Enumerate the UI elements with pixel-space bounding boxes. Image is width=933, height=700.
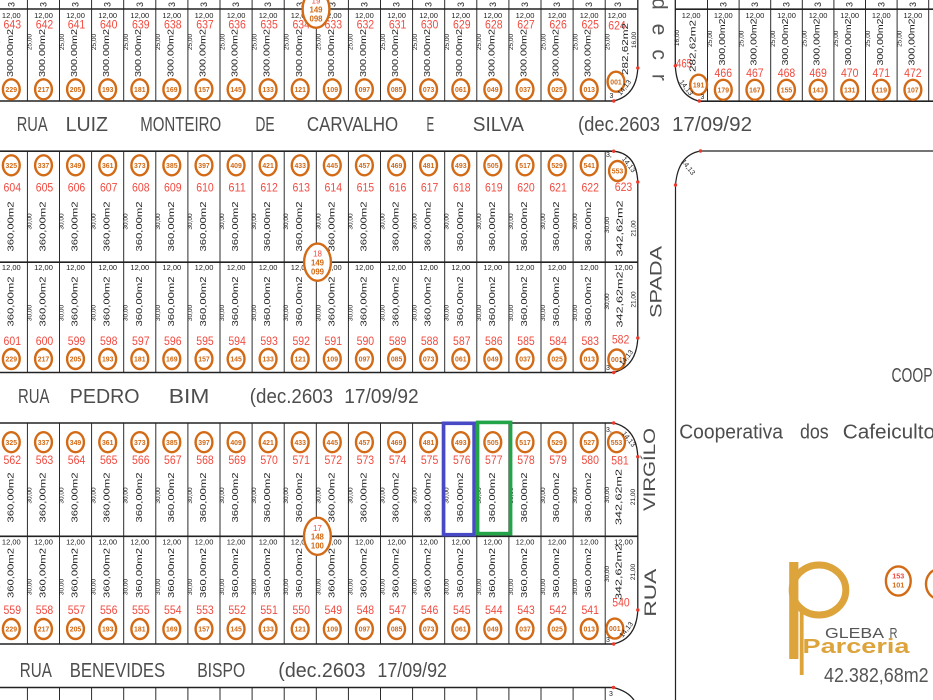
- svg-text:553: 553: [612, 169, 624, 176]
- svg-text:25,00: 25,00: [738, 30, 745, 47]
- svg-text:360,00m2: 360,00m2: [294, 276, 304, 326]
- svg-text:553: 553: [611, 440, 623, 447]
- svg-text:360,00m2: 360,00m2: [326, 472, 336, 522]
- svg-text:205: 205: [70, 357, 82, 364]
- svg-text:30,00: 30,00: [380, 487, 387, 504]
- svg-text:3: 3: [584, 2, 594, 7]
- svg-text:571: 571: [292, 453, 310, 467]
- svg-text:169: 169: [166, 627, 178, 634]
- svg-text:30,00: 30,00: [26, 304, 33, 321]
- svg-text:3: 3: [424, 2, 434, 7]
- svg-text:433: 433: [294, 440, 306, 447]
- svg-text:554: 554: [164, 603, 182, 617]
- svg-text:300.00m2: 300.00m2: [37, 29, 47, 77]
- svg-text:587: 587: [453, 334, 471, 348]
- svg-text:360,00m2: 360,00m2: [519, 201, 529, 251]
- svg-text:12,00: 12,00: [419, 263, 438, 272]
- svg-text:360,00m2: 360,00m2: [102, 201, 112, 251]
- svg-text:30,00: 30,00: [283, 304, 290, 321]
- svg-text:300.00m2: 300.00m2: [198, 29, 208, 77]
- svg-text:457: 457: [359, 163, 371, 170]
- svg-text:(dec.2603: (dec.2603: [578, 114, 660, 136]
- svg-text:18: 18: [313, 250, 322, 259]
- svg-text:3: 3: [103, 2, 113, 7]
- svg-text:300.00m2: 300.00m2: [486, 29, 496, 77]
- svg-text:325: 325: [6, 440, 18, 447]
- svg-text:30,00: 30,00: [251, 578, 258, 595]
- svg-text:17/09/92: 17/09/92: [672, 114, 752, 136]
- svg-text:30,00: 30,00: [412, 578, 419, 595]
- svg-text:30,00: 30,00: [26, 213, 33, 230]
- svg-text:12,00: 12,00: [387, 537, 406, 546]
- svg-text:157: 157: [198, 357, 210, 364]
- svg-text:360,00m2: 360,00m2: [423, 201, 433, 251]
- svg-text:360,00m2: 360,00m2: [326, 201, 336, 251]
- svg-text:360,00m2: 360,00m2: [230, 548, 240, 598]
- svg-text:472: 472: [904, 66, 922, 80]
- svg-text:30,00: 30,00: [540, 213, 547, 230]
- svg-text:579: 579: [549, 453, 567, 467]
- svg-text:547: 547: [389, 603, 407, 617]
- svg-text:181: 181: [134, 357, 146, 364]
- svg-text:545: 545: [453, 603, 471, 617]
- svg-text:25,00: 25,00: [540, 33, 547, 50]
- svg-text:25,00: 25,00: [91, 33, 98, 50]
- svg-text:552: 552: [228, 603, 246, 617]
- svg-text:229: 229: [6, 627, 18, 634]
- svg-text:217: 217: [38, 87, 50, 94]
- svg-text:576: 576: [453, 453, 471, 467]
- svg-text:360,00m2: 360,00m2: [487, 548, 497, 598]
- svg-text:3: 3: [609, 691, 613, 698]
- svg-text:12,00: 12,00: [162, 263, 181, 272]
- svg-text:623: 623: [615, 180, 633, 194]
- svg-text:3: 3: [6, 2, 16, 7]
- svg-text:591: 591: [325, 334, 343, 348]
- svg-text:300.00m2: 300.00m2: [519, 29, 529, 77]
- svg-text:30,00: 30,00: [380, 304, 387, 321]
- svg-text:300,00m2: 300,00m2: [843, 18, 853, 65]
- svg-text:421: 421: [262, 440, 274, 447]
- svg-text:155: 155: [781, 87, 793, 94]
- svg-text:25,00: 25,00: [444, 33, 451, 50]
- svg-text:282,62m2: 282,62m2: [688, 20, 698, 72]
- svg-text:3: 3: [263, 2, 273, 7]
- svg-text:30,00: 30,00: [123, 487, 130, 504]
- svg-text:dos: dos: [800, 422, 829, 444]
- svg-text:282,62m2: 282,62m2: [620, 23, 630, 75]
- svg-text:30,00: 30,00: [380, 213, 387, 230]
- svg-text:577: 577: [485, 453, 503, 467]
- svg-text:073: 073: [423, 627, 435, 634]
- svg-text:12,00: 12,00: [451, 263, 470, 272]
- svg-text:25,00: 25,00: [123, 33, 130, 50]
- svg-text:145: 145: [230, 87, 242, 94]
- svg-text:360,00m2: 360,00m2: [423, 276, 433, 326]
- svg-text:3: 3: [606, 637, 610, 644]
- svg-text:360,00m2: 360,00m2: [326, 276, 336, 326]
- svg-text:373: 373: [134, 440, 146, 447]
- svg-text:25,00: 25,00: [187, 33, 194, 50]
- svg-text:3: 3: [39, 2, 49, 7]
- svg-text:360,00m2: 360,00m2: [519, 276, 529, 326]
- svg-text:300.00m2: 300.00m2: [165, 29, 175, 77]
- svg-text:157: 157: [198, 87, 210, 94]
- svg-text:575: 575: [421, 453, 439, 467]
- svg-text:3: 3: [520, 2, 530, 7]
- svg-text:153: 153: [892, 572, 904, 581]
- svg-text:360,00m2: 360,00m2: [102, 276, 112, 326]
- svg-text:145: 145: [230, 357, 242, 364]
- svg-text:Parceria: Parceria: [803, 636, 911, 658]
- svg-text:558: 558: [36, 603, 54, 617]
- svg-text:342,62m2: 342,62m2: [614, 544, 624, 600]
- svg-text:25,00: 25,00: [412, 33, 419, 50]
- svg-text:550: 550: [292, 603, 310, 617]
- svg-text:21,00: 21,00: [631, 291, 638, 308]
- svg-text:549: 549: [325, 603, 343, 617]
- svg-text:342,62m2: 342,62m2: [614, 469, 624, 525]
- svg-text:30,00: 30,00: [604, 216, 611, 233]
- svg-text:30,00: 30,00: [155, 304, 162, 321]
- svg-text:614: 614: [325, 181, 343, 195]
- svg-text:061: 061: [455, 357, 467, 364]
- svg-text:30,00: 30,00: [315, 487, 322, 504]
- svg-text:E: E: [427, 114, 435, 136]
- svg-text:30,00: 30,00: [59, 213, 66, 230]
- svg-text:145: 145: [230, 627, 242, 634]
- svg-text:073: 073: [423, 87, 435, 94]
- svg-text:360,00m2: 360,00m2: [551, 201, 561, 251]
- svg-text:300,00m2: 300,00m2: [812, 18, 822, 65]
- svg-text:12,00: 12,00: [2, 263, 21, 272]
- svg-text:572: 572: [325, 453, 343, 467]
- svg-text:30,00: 30,00: [540, 304, 547, 321]
- svg-text:578: 578: [517, 453, 535, 467]
- svg-text:397: 397: [198, 440, 210, 447]
- svg-text:131: 131: [844, 87, 856, 94]
- svg-text:3: 3: [718, 2, 728, 7]
- svg-text:360,00m2: 360,00m2: [487, 472, 497, 522]
- svg-text:30,00: 30,00: [508, 304, 515, 321]
- svg-text:RUA: RUA: [17, 114, 48, 136]
- svg-text:563: 563: [36, 453, 54, 467]
- svg-text:360,00m2: 360,00m2: [5, 472, 15, 522]
- svg-text:30,00: 30,00: [604, 565, 611, 582]
- svg-text:609: 609: [164, 181, 182, 195]
- svg-text:12,00: 12,00: [682, 11, 701, 20]
- svg-text:(dec.2603: (dec.2603: [250, 386, 333, 408]
- svg-text:085: 085: [391, 627, 403, 634]
- svg-text:30,00: 30,00: [347, 578, 354, 595]
- svg-text:30,00: 30,00: [91, 304, 98, 321]
- svg-text:540: 540: [612, 596, 630, 610]
- svg-text:30,00: 30,00: [0, 213, 1, 230]
- svg-text:3: 3: [199, 2, 209, 7]
- svg-text:30,00: 30,00: [572, 578, 579, 595]
- svg-text:385: 385: [166, 163, 178, 170]
- svg-text:12,00: 12,00: [66, 263, 85, 272]
- svg-text:361: 361: [102, 440, 114, 447]
- svg-text:360,00m2: 360,00m2: [583, 472, 593, 522]
- svg-text:360,00m2: 360,00m2: [326, 548, 336, 598]
- svg-text:360,00m2: 360,00m2: [391, 548, 401, 598]
- svg-text:542: 542: [549, 603, 567, 617]
- svg-text:583: 583: [581, 334, 599, 348]
- svg-text:421: 421: [262, 163, 274, 170]
- svg-text:505: 505: [487, 440, 499, 447]
- svg-text:360,00m2: 360,00m2: [551, 548, 561, 598]
- svg-text:360,00m2: 360,00m2: [391, 276, 401, 326]
- svg-text:098: 098: [310, 14, 324, 23]
- svg-text:21,00: 21,00: [630, 488, 637, 505]
- svg-text:543: 543: [517, 603, 535, 617]
- svg-text:037: 037: [519, 627, 531, 634]
- svg-text:607: 607: [100, 181, 118, 195]
- svg-text:013: 013: [583, 87, 595, 94]
- svg-text:25,00: 25,00: [0, 33, 2, 50]
- svg-text:360,00m2: 360,00m2: [70, 276, 80, 326]
- svg-text:593: 593: [260, 334, 278, 348]
- svg-text:373: 373: [134, 163, 146, 170]
- svg-text:133: 133: [262, 87, 274, 94]
- svg-text:360,00m2: 360,00m2: [134, 472, 144, 522]
- svg-text:612: 612: [260, 181, 278, 195]
- svg-text:decr: decr: [648, 0, 671, 95]
- svg-text:049: 049: [487, 357, 499, 364]
- svg-text:3: 3: [813, 2, 823, 7]
- svg-text:3: 3: [231, 2, 241, 7]
- svg-text:30,00: 30,00: [123, 578, 130, 595]
- svg-text:30,00: 30,00: [444, 213, 451, 230]
- svg-text:360,00m2: 360,00m2: [583, 276, 593, 326]
- svg-text:517: 517: [519, 440, 531, 447]
- svg-text:25,00: 25,00: [707, 30, 714, 47]
- svg-text:30,00: 30,00: [0, 487, 1, 504]
- svg-text:601: 601: [4, 334, 22, 348]
- svg-text:21,00: 21,00: [631, 220, 638, 237]
- svg-text:25,00: 25,00: [896, 30, 903, 47]
- svg-text:595: 595: [196, 334, 214, 348]
- svg-text:300.00m2: 300.00m2: [133, 29, 143, 77]
- svg-text:30,00: 30,00: [59, 304, 66, 321]
- svg-text:205: 205: [70, 627, 82, 634]
- svg-text:30,00: 30,00: [91, 578, 98, 595]
- svg-text:445: 445: [327, 163, 339, 170]
- svg-text:588: 588: [421, 334, 439, 348]
- svg-text:LUIZ: LUIZ: [66, 114, 108, 136]
- svg-text:001: 001: [609, 626, 621, 633]
- svg-text:193: 193: [102, 357, 114, 364]
- svg-text:30,00: 30,00: [283, 578, 290, 595]
- svg-text:30,00: 30,00: [251, 213, 258, 230]
- svg-text:548: 548: [357, 603, 375, 617]
- svg-text:025: 025: [551, 627, 563, 634]
- svg-text:121: 121: [294, 87, 306, 94]
- svg-text:16,00: 16,00: [631, 31, 638, 48]
- svg-text:469: 469: [391, 440, 403, 447]
- svg-text:30,00: 30,00: [0, 578, 1, 595]
- svg-text:617: 617: [421, 181, 439, 195]
- svg-text:30,00: 30,00: [508, 578, 515, 595]
- svg-text:RUA: RUA: [20, 660, 53, 682]
- svg-text:30,00: 30,00: [26, 578, 33, 595]
- svg-text:30,00: 30,00: [315, 213, 322, 230]
- svg-text:3: 3: [908, 2, 918, 7]
- svg-text:3: 3: [135, 2, 145, 7]
- svg-text:300.00m2: 300.00m2: [262, 29, 272, 77]
- svg-text:148: 148: [311, 533, 325, 542]
- svg-text:581: 581: [611, 454, 629, 468]
- svg-text:3: 3: [456, 2, 466, 7]
- svg-text:567: 567: [164, 453, 182, 467]
- svg-text:30,00: 30,00: [540, 487, 547, 504]
- svg-text:100: 100: [311, 542, 325, 551]
- svg-text:469: 469: [391, 163, 403, 170]
- svg-text:360,00m2: 360,00m2: [134, 201, 144, 251]
- svg-text:360,00m2: 360,00m2: [487, 201, 497, 251]
- svg-text:582: 582: [612, 333, 630, 347]
- svg-text:360,00m2: 360,00m2: [551, 472, 561, 522]
- svg-text:037: 037: [519, 357, 531, 364]
- svg-text:3: 3: [701, 94, 705, 101]
- svg-text:619: 619: [485, 181, 503, 195]
- svg-text:30,00: 30,00: [187, 304, 194, 321]
- svg-text:589: 589: [389, 334, 407, 348]
- svg-text:360,00m2: 360,00m2: [358, 548, 368, 598]
- svg-text:205: 205: [70, 87, 82, 94]
- svg-text:469: 469: [809, 66, 827, 80]
- svg-text:30,00: 30,00: [604, 293, 611, 310]
- svg-text:12,00: 12,00: [483, 537, 502, 546]
- svg-text:12,00: 12,00: [355, 263, 374, 272]
- svg-text:360,00m2: 360,00m2: [230, 276, 240, 326]
- svg-text:360,00m2: 360,00m2: [102, 472, 112, 522]
- svg-text:179: 179: [718, 87, 730, 94]
- svg-text:25,00: 25,00: [251, 33, 258, 50]
- svg-text:574: 574: [389, 453, 407, 467]
- svg-text:325: 325: [6, 163, 18, 170]
- svg-text:337: 337: [38, 163, 50, 170]
- svg-text:Cooperativa: Cooperativa: [679, 422, 784, 444]
- svg-text:409: 409: [230, 163, 242, 170]
- svg-text:101: 101: [892, 581, 904, 590]
- svg-text:360,00m2: 360,00m2: [70, 472, 80, 522]
- svg-text:BENEVIDES: BENEVIDES: [70, 660, 165, 682]
- svg-text:360,00m2: 360,00m2: [262, 276, 272, 326]
- svg-text:12,00: 12,00: [580, 537, 599, 546]
- svg-text:25,00: 25,00: [476, 33, 483, 50]
- svg-text:25,00: 25,00: [155, 33, 162, 50]
- svg-text:12,00: 12,00: [66, 537, 85, 546]
- svg-text:12,00: 12,00: [98, 537, 117, 546]
- svg-text:25,00: 25,00: [605, 33, 612, 50]
- svg-text:085: 085: [391, 357, 403, 364]
- svg-text:562: 562: [4, 453, 22, 467]
- svg-text:566: 566: [132, 453, 150, 467]
- svg-text:25,00: 25,00: [348, 33, 355, 50]
- svg-text:471: 471: [873, 66, 891, 80]
- svg-text:30,00: 30,00: [444, 578, 451, 595]
- svg-text:360,00m2: 360,00m2: [294, 201, 304, 251]
- svg-text:605: 605: [36, 181, 54, 195]
- svg-text:12,00: 12,00: [130, 537, 149, 546]
- svg-text:608: 608: [132, 181, 150, 195]
- svg-text:360,00m2: 360,00m2: [455, 201, 465, 251]
- svg-text:30,00: 30,00: [251, 487, 258, 504]
- svg-text:360,00m2: 360,00m2: [70, 548, 80, 598]
- svg-text:397: 397: [198, 163, 210, 170]
- svg-text:30,00: 30,00: [412, 213, 419, 230]
- svg-text:30,00: 30,00: [347, 304, 354, 321]
- svg-text:149: 149: [310, 5, 324, 14]
- svg-text:17: 17: [313, 524, 322, 533]
- svg-text:300,00m2: 300,00m2: [906, 18, 916, 65]
- svg-text:568: 568: [196, 453, 214, 467]
- svg-text:599: 599: [68, 334, 86, 348]
- svg-text:433: 433: [294, 163, 306, 170]
- svg-text:360,00m2: 360,00m2: [198, 548, 208, 598]
- svg-text:360,00m2: 360,00m2: [358, 201, 368, 251]
- svg-text:30,00: 30,00: [540, 578, 547, 595]
- svg-text:3: 3: [392, 2, 402, 7]
- svg-text:360,00m2: 360,00m2: [134, 548, 144, 598]
- svg-text:360,00m2: 360,00m2: [166, 276, 176, 326]
- svg-text:360,00m2: 360,00m2: [583, 201, 593, 251]
- svg-text:30,00: 30,00: [155, 578, 162, 595]
- svg-text:564: 564: [68, 453, 86, 467]
- svg-text:SPADA: SPADA: [647, 245, 666, 318]
- svg-text:12,00: 12,00: [419, 537, 438, 546]
- svg-text:360,00m2: 360,00m2: [358, 276, 368, 326]
- svg-text:470: 470: [841, 66, 859, 80]
- svg-text:3: 3: [359, 2, 369, 7]
- svg-text:30,00: 30,00: [347, 213, 354, 230]
- svg-text:622: 622: [581, 181, 599, 195]
- svg-text:360,00m2: 360,00m2: [38, 548, 48, 598]
- svg-text:109: 109: [327, 87, 339, 94]
- svg-text:30,00: 30,00: [476, 213, 483, 230]
- svg-text:300.00m2: 300.00m2: [101, 29, 111, 77]
- svg-text:556: 556: [100, 603, 118, 617]
- svg-text:073: 073: [423, 357, 435, 364]
- svg-text:481: 481: [423, 163, 435, 170]
- svg-text:25,00: 25,00: [802, 30, 809, 47]
- svg-text:30,00: 30,00: [26, 487, 33, 504]
- svg-text:12,00: 12,00: [516, 263, 535, 272]
- svg-text:30,00: 30,00: [251, 304, 258, 321]
- svg-text:360,00m2: 360,00m2: [5, 548, 15, 598]
- svg-text:493: 493: [455, 440, 467, 447]
- svg-text:12,00: 12,00: [548, 537, 567, 546]
- svg-text:001: 001: [610, 79, 622, 86]
- svg-text:360,00m2: 360,00m2: [134, 276, 144, 326]
- svg-text:555: 555: [132, 603, 150, 617]
- svg-text:013: 013: [583, 357, 595, 364]
- svg-text:16,00: 16,00: [674, 29, 681, 46]
- svg-text:099: 099: [311, 267, 325, 276]
- svg-text:12,00: 12,00: [387, 263, 406, 272]
- svg-text:615: 615: [357, 181, 375, 195]
- svg-text:30,00: 30,00: [0, 304, 1, 321]
- svg-text:30,00: 30,00: [219, 487, 226, 504]
- svg-text:12,00: 12,00: [34, 263, 53, 272]
- svg-text:300.00m2: 300.00m2: [326, 29, 336, 77]
- svg-text:620: 620: [517, 181, 535, 195]
- svg-text:590: 590: [357, 334, 375, 348]
- svg-text:25,00: 25,00: [316, 33, 323, 50]
- svg-text:618: 618: [453, 181, 471, 195]
